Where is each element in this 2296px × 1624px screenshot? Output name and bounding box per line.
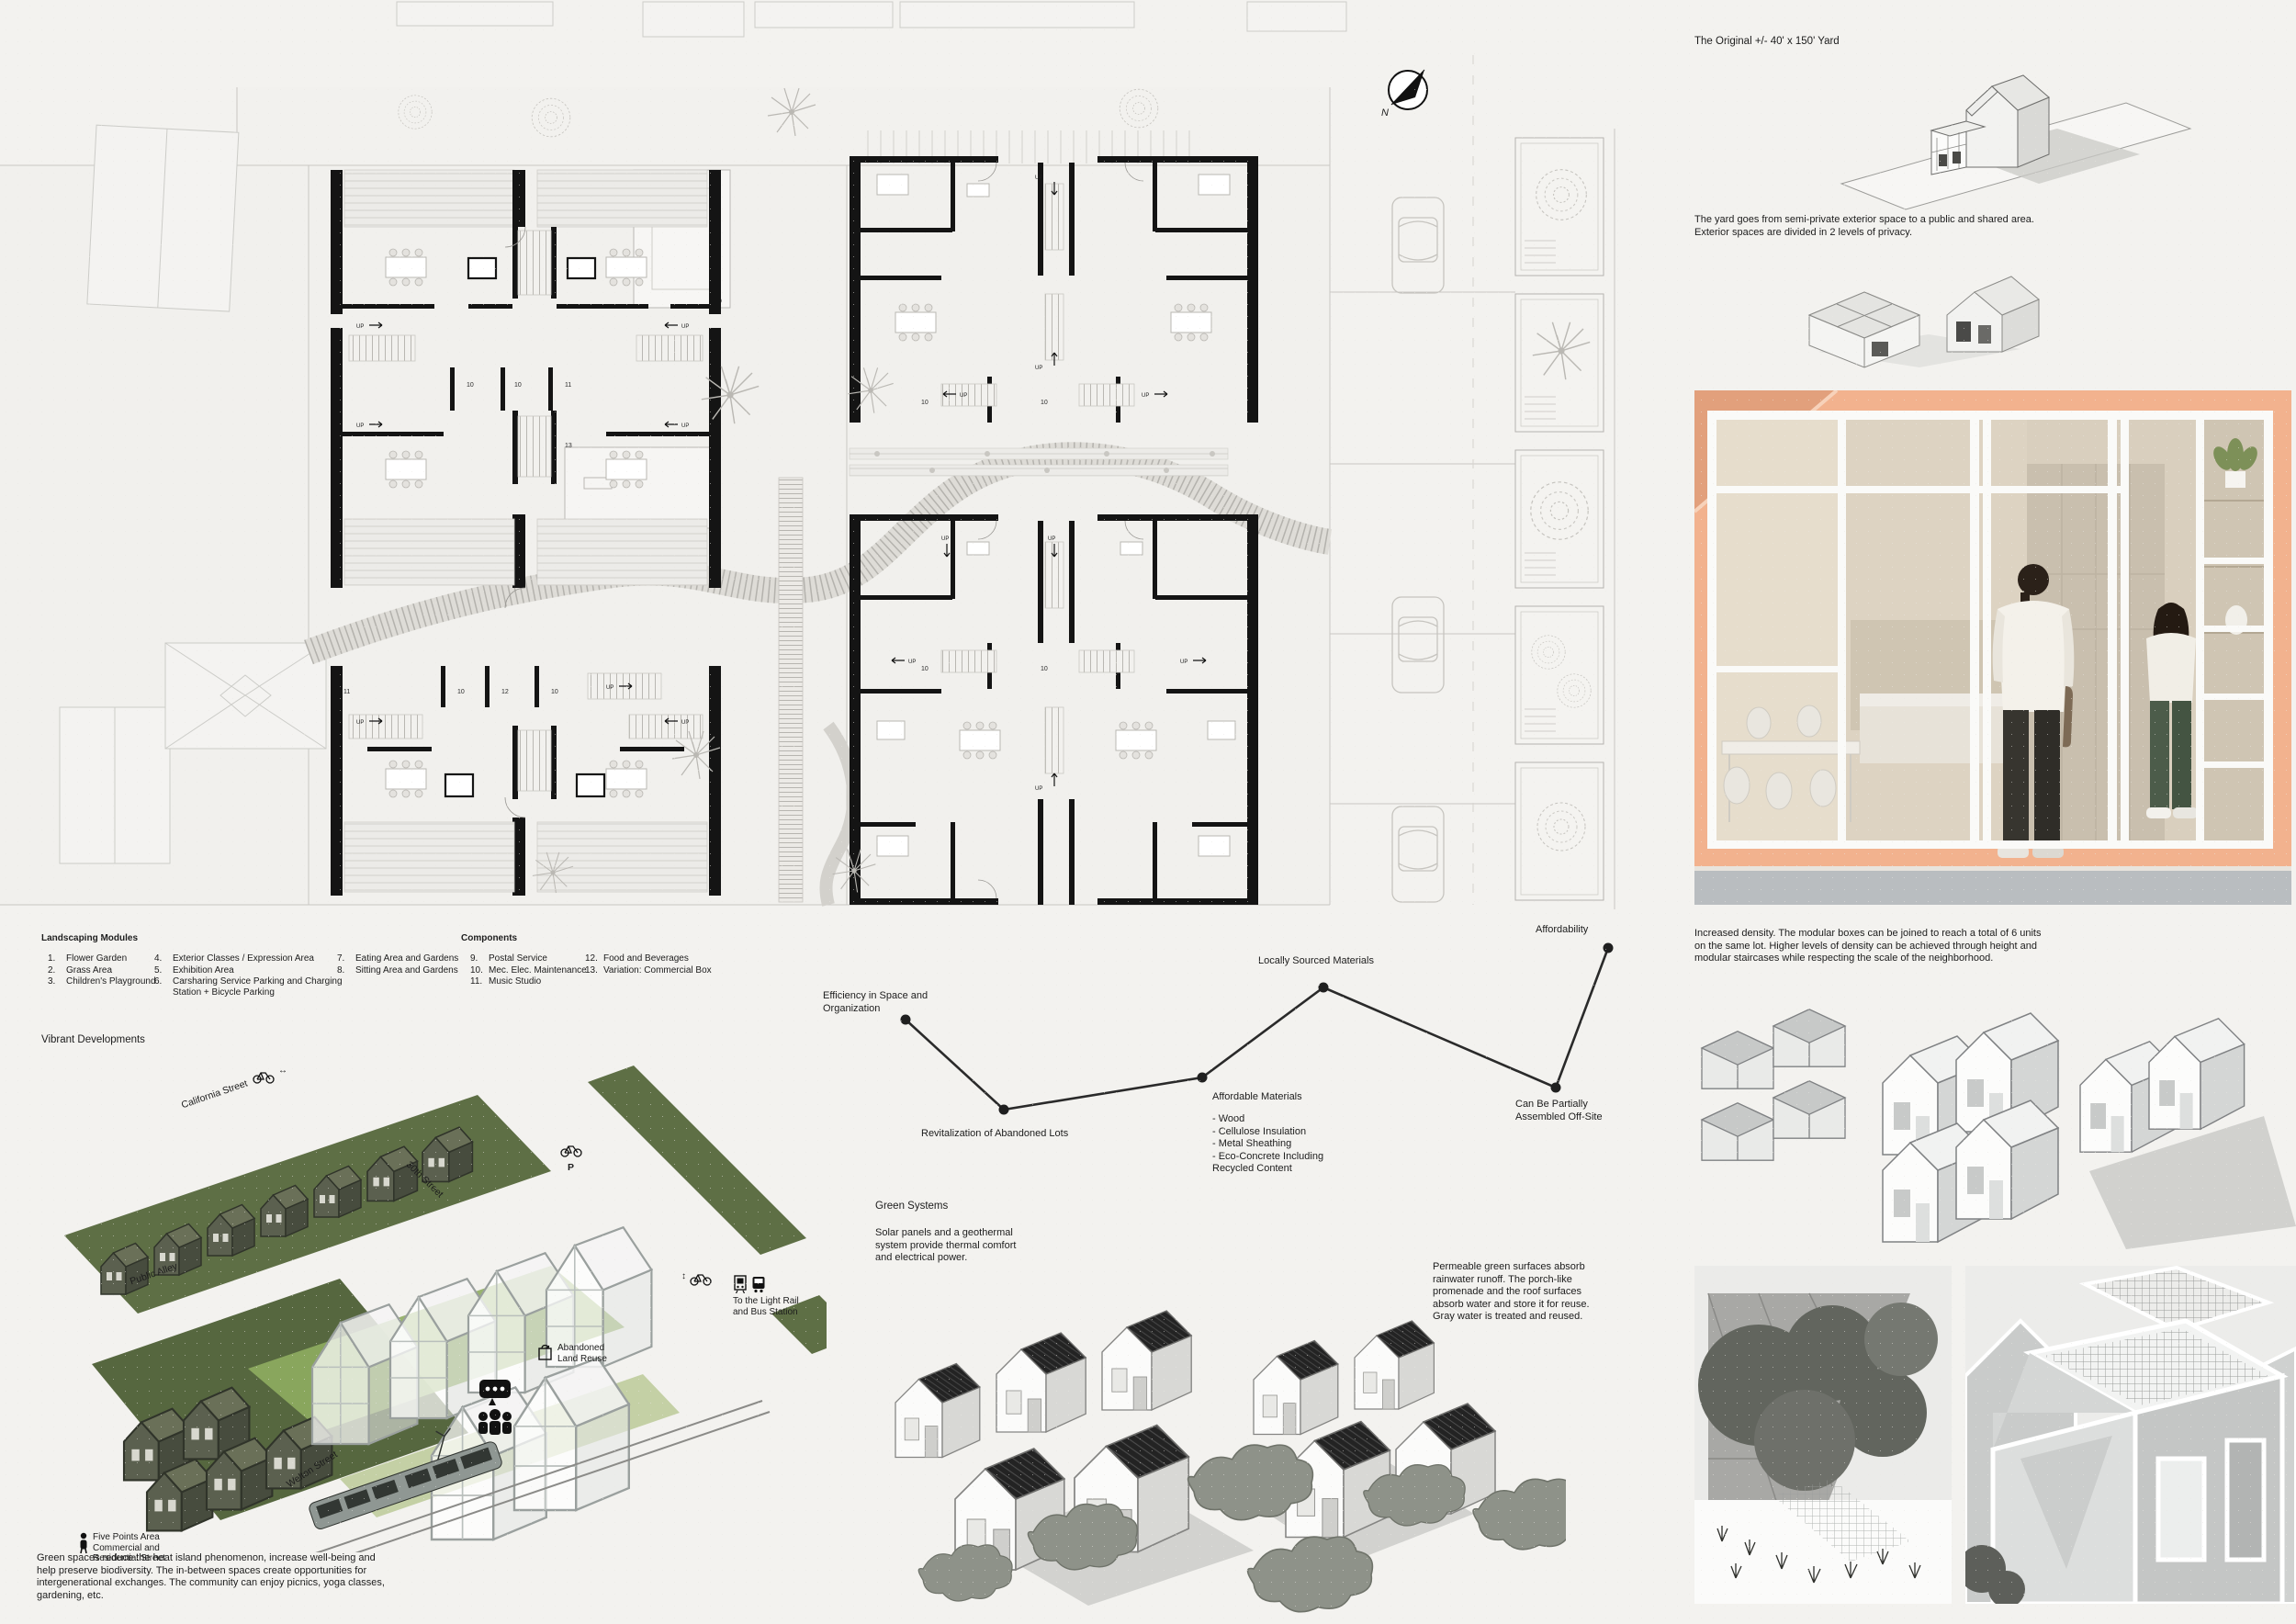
density-paragraph: Increased density. The modular boxes can… (1694, 928, 2089, 965)
up-label: UP (681, 324, 689, 330)
unit-number: 13 (565, 443, 572, 449)
unit-number: 12 (501, 689, 509, 695)
vibrant-title: Vibrant Developments (41, 1033, 145, 1046)
legend-block: Landscaping Modules 1.Flower Garden 2.Gr… (37, 930, 753, 1003)
modular-density-render (1694, 997, 2296, 1249)
legend-item: 2.Grass Area (48, 965, 156, 976)
vibrant-axon-drawing (37, 1047, 827, 1552)
landscaping-legend-col3: 7.Eating Area and Gardens 8.Sitting Area… (337, 953, 458, 976)
bike-share-icon-a: ↔ (253, 1066, 287, 1088)
components-legend-col1: 9.Postal Service 10.Mec. Elec. Maintenan… (470, 953, 587, 988)
yard-axon-drawing (1823, 64, 2227, 211)
yard-study-caption: The yard goes from semi-private exterior… (1694, 214, 2089, 239)
unit-number: 11 (343, 689, 350, 695)
unit-number: 10 (457, 689, 465, 695)
chart-label-off-site: Can Be Partially Assembled Off-Site (1515, 1099, 1603, 1123)
unit-number: 10 (551, 689, 558, 695)
person-icon (78, 1532, 89, 1554)
legend-item: 13.Variation: Commercial Box (585, 965, 712, 976)
north-arrow-icon: N (1381, 70, 1427, 118)
unit-number: 11 (565, 382, 571, 389)
legend-item: 10.Mec. Elec. Maintenance (470, 965, 587, 976)
unit-number: 10 (1041, 400, 1048, 406)
parking-label: P (568, 1162, 582, 1173)
presentation-board: 9 10 10 11 13 (0, 0, 2296, 1624)
yard-study-title: The Original +/- 40' x 150' Yard (1694, 35, 1840, 48)
unit-number: 10 (514, 382, 522, 389)
unit-number: 10 (467, 382, 474, 389)
chart-label-revitalization: Revitalization of Abandoned Lots (921, 1128, 1068, 1141)
legend-item: 11.Music Studio (470, 976, 587, 987)
legend-item: 4.Exterior Classes / Expression Area (154, 953, 343, 964)
legend-item: 3.Children's Playground (48, 976, 156, 987)
unit-number: 10 (921, 400, 929, 406)
up-label: UP (681, 720, 689, 726)
landscaping-legend-col2: 4.Exterior Classes / Expression Area 5.E… (154, 953, 343, 998)
components-legend-title: Components (461, 933, 517, 944)
chart-label-efficiency: Efficiency in Space and Organization (823, 990, 928, 1015)
up-label: UP (356, 720, 364, 726)
privacy-levels-axon (1791, 265, 2094, 379)
light-rail-icon (733, 1275, 748, 1293)
green-systems-solar-text: Solar panels and a geothermal system pro… (875, 1227, 1086, 1265)
chart-points (901, 943, 1614, 1115)
vibrant-paragraph: Green spaces reduce the heat island phen… (37, 1552, 514, 1602)
unit-number: 10 (921, 666, 929, 672)
solar-neighborhood-render (868, 1275, 1566, 1624)
vegetation-render (1694, 1266, 1952, 1604)
abandoned-land-callout: Abandoned Land Reuse (537, 1343, 607, 1364)
legend-item: 8.Sitting Area and Gardens (337, 965, 458, 976)
legend-item: 1.Flower Garden (48, 953, 156, 964)
up-label: UP (1142, 393, 1149, 399)
components-legend-col2: 12.Food and Beverages 13.Variation: Comm… (585, 953, 712, 976)
up-label: UP (1035, 366, 1042, 371)
chart-label-locally-sourced: Locally Sourced Materials (1258, 955, 1374, 968)
bicycle-icon (560, 1143, 582, 1157)
legend-item: 12.Food and Beverages (585, 953, 712, 964)
boardwalk (779, 478, 803, 902)
up-label: UP (1180, 660, 1187, 665)
interior-render (1694, 390, 2291, 905)
unit-number: 10 (1041, 666, 1048, 672)
bicycle-icon (690, 1271, 712, 1286)
up-label: UP (960, 393, 967, 399)
up-label: UP (356, 324, 364, 330)
chart-label-affordable-materials: Affordable Materials (1212, 1091, 1302, 1104)
chart-materials-list: - Wood - Cellulose Insulation - Metal Sh… (1212, 1113, 1323, 1176)
up-label: UP (941, 536, 949, 542)
bike-share-icon-b: ↕ (681, 1271, 712, 1286)
legend-item: 5.Exhibition Area (154, 965, 343, 976)
open-box-modules (1702, 1009, 1845, 1160)
landscaping-legend-title: Landscaping Modules (41, 933, 138, 944)
bus-icon (751, 1275, 766, 1293)
chart-label-affordability: Affordability (1536, 924, 1588, 937)
legend-item: 9.Postal Service (470, 953, 587, 964)
up-label: UP (908, 660, 916, 665)
street-cars (1392, 55, 1473, 905)
module-closeup-render (1965, 1266, 2296, 1604)
bike-parking-callout: P (560, 1143, 582, 1173)
land-reuse-icon (537, 1343, 554, 1361)
up-label: UP (1035, 786, 1042, 792)
chart-line (906, 948, 1608, 1110)
legend-item: 6.Carsharing Service Parking and Chargin… (154, 976, 343, 998)
sidewalk (1694, 870, 2291, 905)
landscaping-legend-col1: 1.Flower Garden 2.Grass Area 3.Children'… (48, 953, 156, 988)
up-label: UP (606, 685, 613, 691)
up-label: UP (356, 423, 364, 429)
thirtieth-street-strip (588, 1066, 806, 1255)
bicycle-icon (253, 1066, 275, 1088)
up-label: UP (1048, 536, 1055, 542)
legend-item: 7.Eating Area and Gardens (337, 953, 458, 964)
garden-boxes-column (1515, 138, 1604, 900)
site-plan-drawing: 9 10 10 11 13 (0, 0, 1653, 919)
up-label: UP (1035, 175, 1042, 181)
up-label: UP (681, 423, 689, 429)
green-systems-title: Green Systems (875, 1200, 948, 1212)
main-module (1993, 1321, 2282, 1604)
north-label: N (1381, 107, 1389, 118)
light-rail-callout: To the Light Rail and Bus Station (733, 1275, 799, 1317)
